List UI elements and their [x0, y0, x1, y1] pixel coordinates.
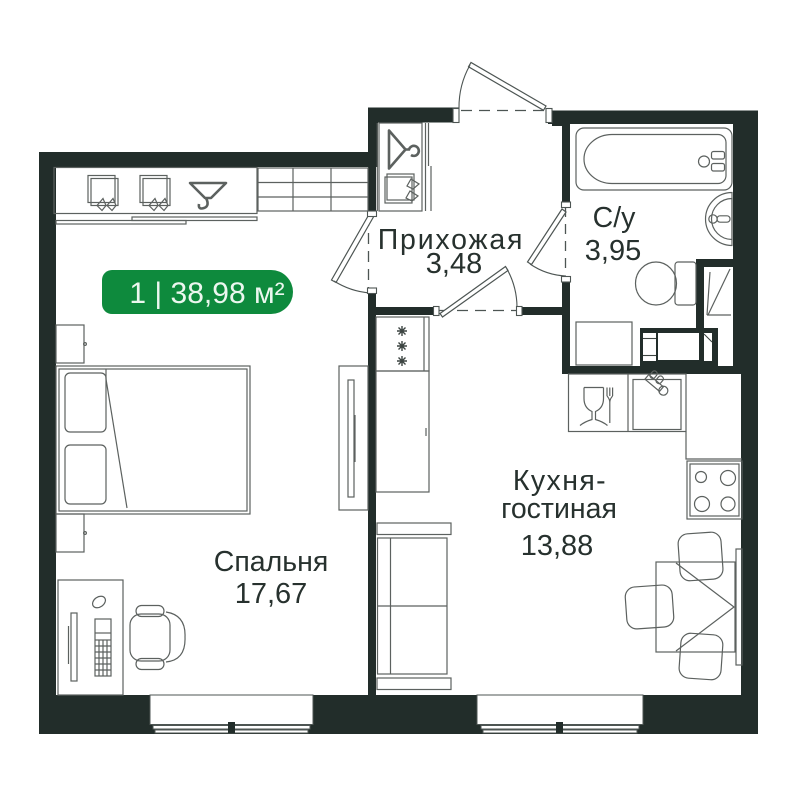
svg-text:13,88: 13,88	[521, 530, 594, 562]
svg-text:17,67: 17,67	[235, 578, 308, 610]
svg-text:С/у: С/у	[593, 202, 637, 234]
svg-text:3,95: 3,95	[585, 235, 641, 267]
svg-text:3,48: 3,48	[426, 248, 482, 280]
svg-text:1 | 38,98 м²: 1 | 38,98 м²	[129, 277, 284, 310]
svg-text:гостиная: гостиная	[501, 493, 617, 525]
svg-text:Спальня: Спальня	[214, 546, 329, 578]
